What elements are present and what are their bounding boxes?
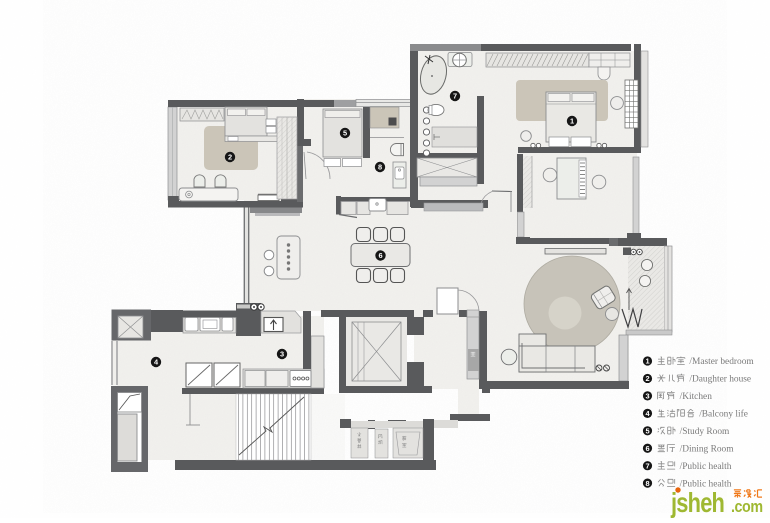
svg-text:/Study Room: /Study Room [680,427,730,437]
svg-text:5: 5 [645,426,649,435]
svg-text:8: 8 [378,163,382,172]
svg-text:7: 7 [453,92,457,101]
svg-text:/Daughter house: /Daughter house [689,375,751,385]
svg-text:1: 1 [645,357,649,366]
svg-text:3: 3 [645,392,649,401]
svg-text:/Dining Room: /Dining Room [680,444,735,454]
svg-text:/Kitchen: /Kitchen [680,392,713,402]
svg-text:3: 3 [280,350,284,359]
svg-text:2: 2 [645,374,649,383]
svg-text:/Balcony life: /Balcony life [699,409,748,420]
svg-text:1: 1 [570,117,574,126]
svg-text:6: 6 [378,251,382,260]
svg-text:6: 6 [645,444,649,453]
svg-text:8: 8 [645,479,649,488]
svg-text:/Master bedroom: /Master bedroom [689,357,754,367]
svg-text:2: 2 [228,153,232,162]
svg-text:5: 5 [343,129,347,138]
svg-text:.com: .com [731,498,763,516]
svg-text:7: 7 [645,461,649,470]
svg-text:/Public health: /Public health [680,462,732,472]
